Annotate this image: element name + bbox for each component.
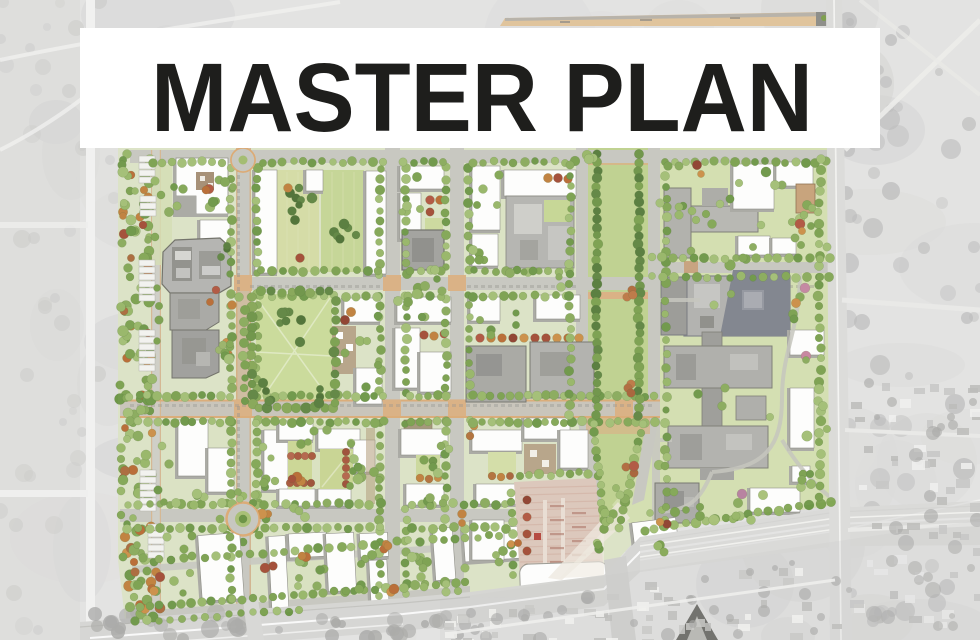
svg-text:MASTER PLAN: MASTER PLAN [151, 43, 813, 152]
